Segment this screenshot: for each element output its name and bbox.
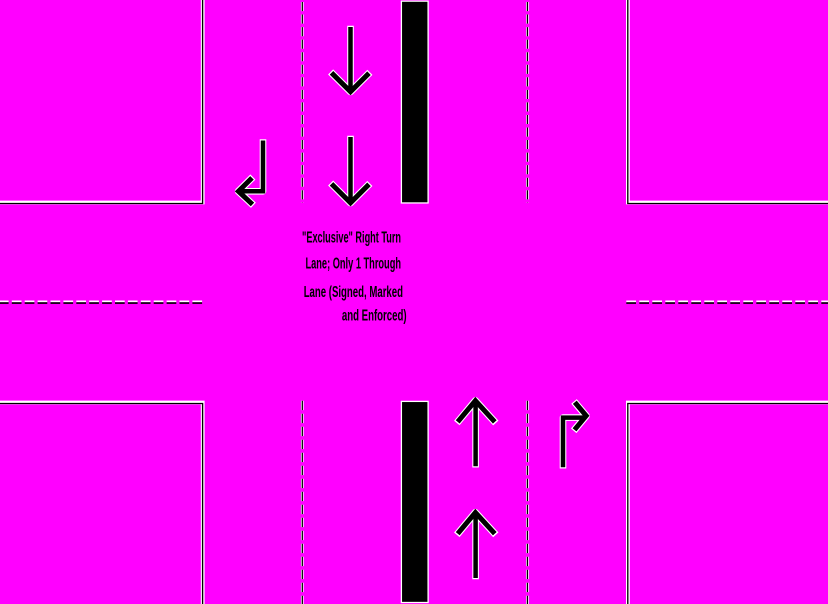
svg-text:and Enforced): and Enforced) (342, 308, 407, 325)
svg-text:"Exclusive" Right Turn: "Exclusive" Right Turn (302, 229, 401, 246)
svg-text:Lane (Signed, Marked: Lane (Signed, Marked (304, 284, 403, 301)
svg-text:Lane; Only 1 Through: Lane; Only 1 Through (306, 256, 402, 273)
